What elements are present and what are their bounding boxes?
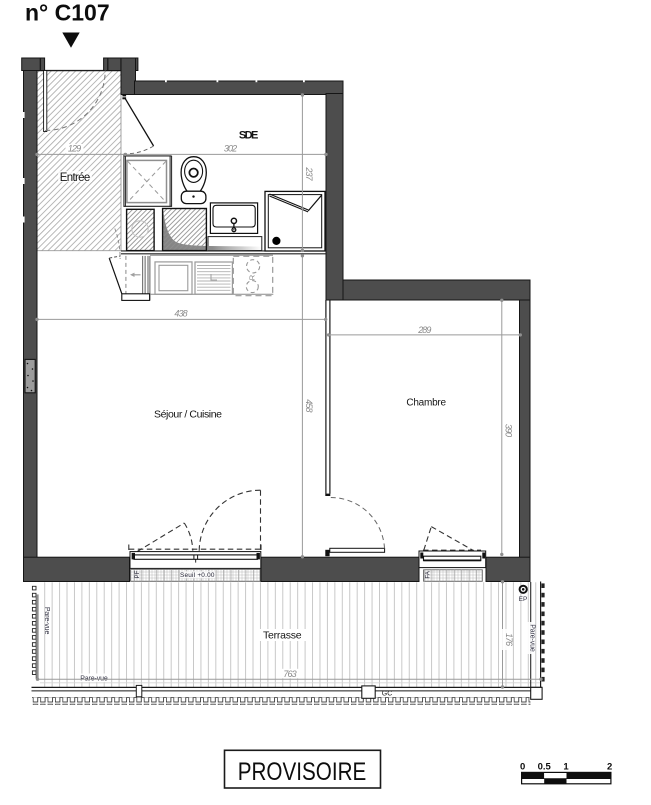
svg-text:0: 0 bbox=[520, 762, 525, 773]
svg-text:176: 176 bbox=[504, 633, 514, 646]
svg-text:SDE: SDE bbox=[239, 130, 259, 142]
svg-text:Chambre: Chambre bbox=[406, 398, 446, 409]
svg-text:Seuil +0.00: Seuil +0.00 bbox=[180, 572, 215, 579]
svg-text:Terrasse: Terrasse bbox=[263, 630, 302, 642]
svg-text:FA: FA bbox=[425, 570, 432, 578]
svg-text:438: 438 bbox=[174, 309, 187, 319]
svg-text:129: 129 bbox=[68, 144, 81, 154]
svg-text:763: 763 bbox=[283, 669, 296, 679]
svg-text:1: 1 bbox=[563, 762, 569, 773]
svg-text:302: 302 bbox=[224, 144, 237, 154]
svg-text:458: 458 bbox=[304, 399, 314, 412]
svg-text:2: 2 bbox=[607, 762, 612, 773]
svg-text:289: 289 bbox=[417, 325, 431, 335]
svg-text:390: 390 bbox=[503, 424, 513, 437]
svg-text:0.5: 0.5 bbox=[538, 762, 552, 773]
svg-text:237: 237 bbox=[304, 166, 314, 181]
svg-text:n° C107: n° C107 bbox=[25, 0, 110, 25]
svg-text:GC: GC bbox=[382, 691, 393, 698]
svg-text:EP: EP bbox=[519, 596, 528, 603]
svg-text:Pare-vue: Pare-vue bbox=[43, 607, 50, 635]
svg-text:Séjour / Cuisine: Séjour / Cuisine bbox=[154, 408, 222, 420]
svg-text:Entrée: Entrée bbox=[60, 172, 91, 184]
svg-text:PF: PF bbox=[134, 570, 141, 578]
svg-text:R: R bbox=[248, 274, 257, 280]
svg-text:Pare-vue: Pare-vue bbox=[528, 624, 535, 652]
svg-text:PROVISOIRE: PROVISOIRE bbox=[238, 758, 367, 786]
